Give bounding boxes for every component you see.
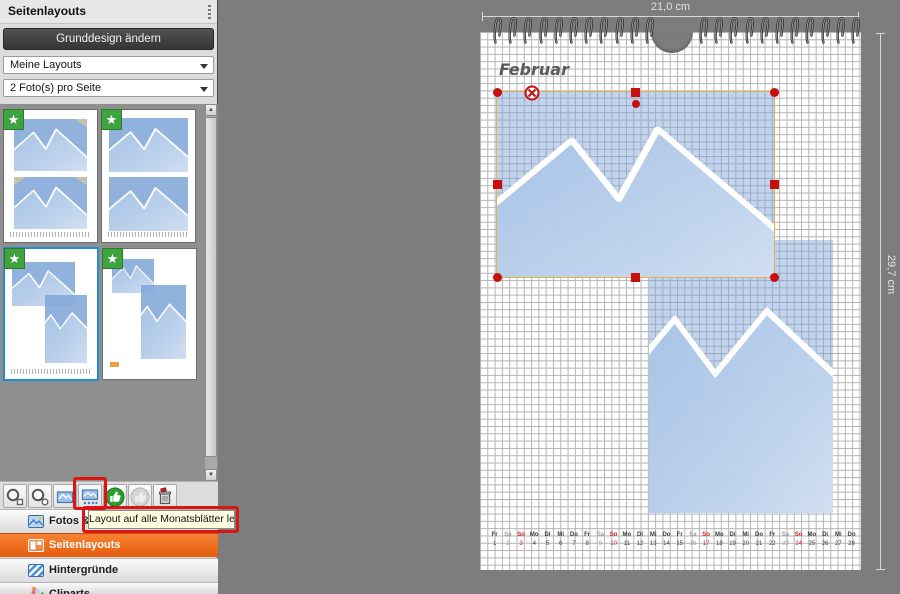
calendar-day: Mi13 [647,531,660,548]
calendar-day: Mo11 [620,531,633,548]
binding-ring-icon [774,15,785,45]
binding-ring-icon [759,15,770,45]
binding-ring-icon [804,15,815,45]
calendar-day: So17 [700,531,713,548]
resize-handle-bottom-right[interactable] [770,273,779,282]
calendar-day: Do28 [845,531,858,548]
scroll-down-icon[interactable]: ▼ [205,469,217,481]
calendar-day: Fr15 [673,531,686,548]
panel-header: Seitenlayouts [0,0,217,24]
binding-ring-icon [820,15,831,45]
layout-group-value: Meine Layouts [10,59,82,71]
calendar-day: Mi20 [739,531,752,548]
layout-toolbar [0,481,218,509]
calendar-day: Mo18 [713,531,726,548]
calendar-day: Mo4 [528,531,541,548]
calendar-day: Fr1 [488,531,501,548]
calendar-day: Di26 [818,531,831,548]
resize-handle-right[interactable] [770,180,779,189]
layout-thumbnail[interactable]: ★ [102,110,195,242]
layout-thumbnail[interactable]: ★ [103,249,196,379]
sidebar-item-cliparts[interactable]: Cliparts [0,582,218,594]
binding-ring-icon [568,15,579,45]
binding-ring-icon [789,15,800,45]
layout-thumbnail[interactable]: ★ [4,110,97,242]
month-label: Februar [499,60,569,79]
resize-handle-bottom[interactable] [631,273,640,282]
resize-handle-left[interactable] [493,180,502,189]
tooltip: Layout auf alle Monatsblätter legen [88,510,235,529]
seitenlayouts-panel: Seitenlayouts Grunddesign ändern Meine L… [0,0,218,594]
calendar-day: Sa16 [686,531,699,548]
calendar-day: Sa23 [779,531,792,548]
calendar-date-strip: Fr1Sa2So3Mo4Di5Mi6Do7Fr8Sa9So10Mo11Di12M… [488,531,858,548]
calendar-designer-window: Seitenlayouts Grunddesign ändern Meine L… [0,0,900,594]
calendar-day: Do21 [752,531,765,548]
magnifier-circle-icon[interactable] [28,484,52,508]
mini-calendar-strip [11,369,92,374]
selection-frame [496,91,775,278]
calendar-day: So24 [792,531,805,548]
mini-month-label [110,362,119,367]
calendar-day: Mi6 [554,531,567,548]
photos-per-page-dropdown[interactable]: 2 Foto(s) pro Seite [3,79,214,97]
height-dimension-line [880,33,881,570]
favorite-star-icon: ★ [101,109,122,130]
rotate-handle[interactable] [632,100,640,108]
scrollbar-thumb[interactable] [205,117,217,457]
binding-ring-icon [629,15,640,45]
resize-handle-top-left[interactable] [493,88,502,97]
resize-handle-top[interactable] [631,88,640,97]
calendar-day: So10 [607,531,620,548]
background-stripes-icon [28,564,44,577]
page-width-label: 21,0 cm [480,1,861,13]
binding-ring-icon [583,15,594,45]
thumbnail-scrollbar[interactable]: ▲ ▼ [205,104,217,481]
thumbs-up-gray-icon[interactable] [128,484,152,508]
calendar-day: Do7 [567,531,580,548]
sidebar-item-hintergruende[interactable]: Hintergründe [0,558,218,582]
chevron-down-icon [200,64,208,69]
delete-photo-icon[interactable] [524,85,540,101]
binding-ring-icon [538,15,549,45]
calendar-day: Di12 [633,531,646,548]
resize-handle-bottom-left[interactable] [493,273,502,282]
favorite-star-icon: ★ [102,248,123,269]
mini-calendar-strip [108,232,190,237]
change-base-design-button[interactable]: Grunddesign ändern [3,28,214,50]
binding-ring-icon [614,15,625,45]
binding-ring-icon [744,15,755,45]
binding-ring-icon [507,15,518,45]
calendar-day: So3 [514,531,527,548]
scroll-up-icon[interactable]: ▲ [205,104,217,116]
calendar-day: Di19 [726,531,739,548]
layout-group-dropdown[interactable]: Meine Layouts [3,56,214,74]
page-height-label: 29,7 cm [885,255,897,294]
photo-icon [28,515,44,528]
favorite-star-icon: ★ [4,248,25,269]
binding-ring-icon [698,15,709,45]
binding-ring-icon [522,15,533,45]
clipart-icon [28,585,44,594]
calendar-day: Sa9 [594,531,607,548]
binding-ring-icon [598,15,609,45]
panel-title: Seitenlayouts [8,4,86,18]
binding-ring-icon [728,15,739,45]
calendar-day: Di5 [541,531,554,548]
binding-ring-icon [492,15,503,45]
panel-grip-icon[interactable] [208,5,211,19]
calendar-day: Fr8 [581,531,594,548]
binding-ring-icon [644,15,655,45]
layout-thumbnail-selected[interactable]: ★ [5,249,97,379]
favorite-star-icon: ★ [3,109,24,130]
calendar-day: Mi27 [832,531,845,548]
chevron-down-icon [200,87,208,92]
binding-ring-icon [553,15,564,45]
calendar-day: Do14 [660,531,673,548]
binding-ring-icon [835,15,846,45]
layout-thumbnail-list: ★ ★ ★ ★ ▲ [0,104,218,481]
binding-ring-icon [850,15,861,45]
calendar-day: Sa2 [501,531,514,548]
calendar-day: Mo25 [805,531,818,548]
magnifier-box-icon[interactable] [3,484,27,508]
binding-ring-icon [713,15,724,45]
trash-icon[interactable] [153,484,177,508]
sidebar-item-seitenlayouts[interactable]: Seitenlayouts [0,533,218,557]
calendar-day: Fr22 [766,531,779,548]
resize-handle-top-right[interactable] [770,88,779,97]
layout-icon [28,539,44,552]
photo-placeholder-portrait[interactable] [649,240,833,513]
photos-per-page-value: 2 Foto(s) pro Seite [10,82,101,94]
mini-calendar-strip [10,232,92,237]
